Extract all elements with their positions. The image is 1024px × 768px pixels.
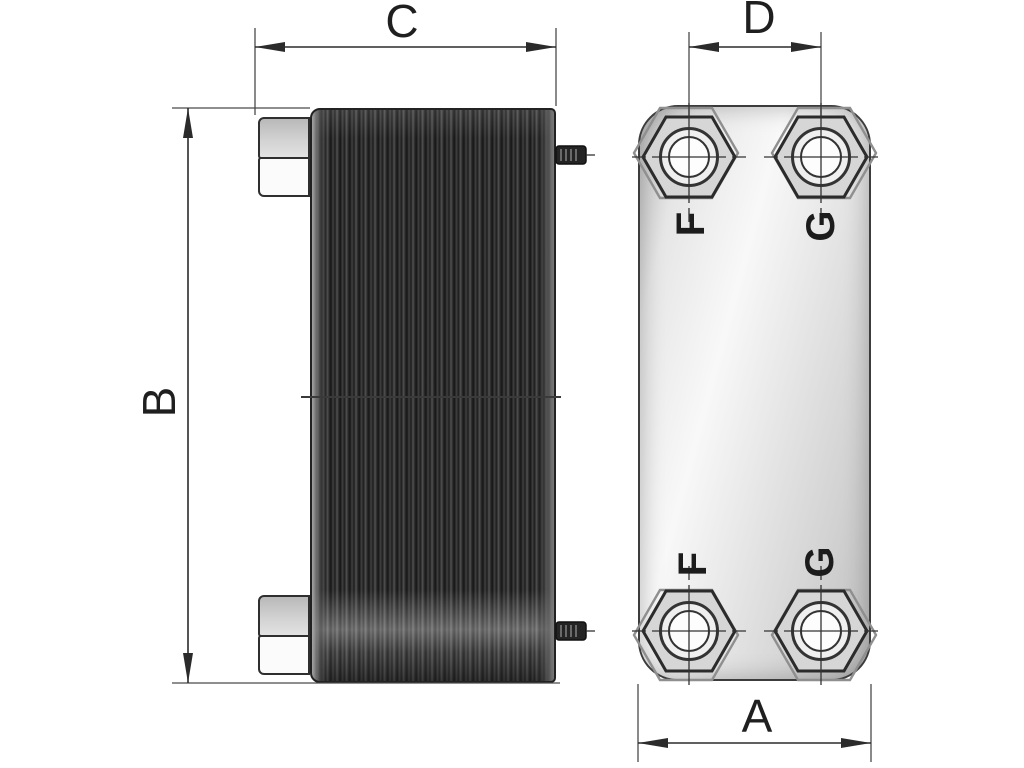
port-top-right — [764, 103, 878, 222]
dim-arrow-left-icon — [255, 42, 285, 52]
bottom-stud — [556, 622, 595, 640]
port-label-bottom-right: G — [800, 546, 840, 577]
port-label-top-right: G — [801, 210, 841, 241]
top-stud — [556, 146, 595, 164]
technical-drawing: C B D A F G F G — [0, 0, 1024, 768]
dimension-b — [172, 108, 560, 683]
drawing-linework — [0, 0, 1024, 768]
dim-arrow-right-icon — [791, 42, 821, 52]
dimension-b-label: B — [136, 387, 182, 418]
port-bottom-left — [632, 566, 746, 685]
dimension-a-label: A — [742, 693, 773, 739]
dimension-d-label: D — [742, 0, 775, 40]
dim-arrow-down-icon — [183, 653, 193, 683]
dim-arrow-up-icon — [183, 108, 193, 138]
dim-arrow-left-icon — [638, 738, 668, 748]
port-label-top-left: F — [671, 212, 711, 236]
dim-arrow-right-icon — [526, 42, 556, 52]
port-top-left — [632, 103, 746, 222]
dimension-c-label: C — [385, 0, 418, 44]
dim-arrow-left-icon — [689, 42, 719, 52]
dim-arrow-right-icon — [841, 738, 871, 748]
port-bottom-right — [764, 566, 878, 685]
port-label-bottom-left: F — [673, 552, 713, 576]
